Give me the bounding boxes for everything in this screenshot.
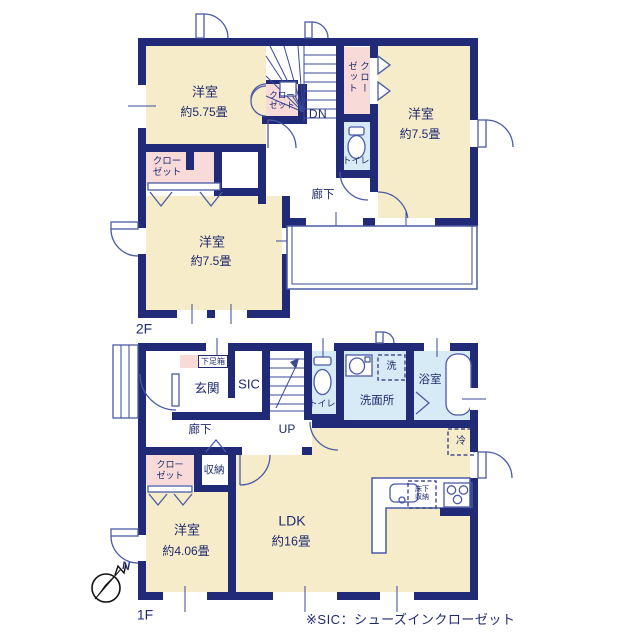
hallway-2f-label: 廊下: [312, 189, 335, 203]
washroom-label: 洗面所: [360, 395, 395, 409]
ldk-size: 約16畳: [272, 535, 311, 550]
balcony: [287, 226, 477, 289]
entrance-label: 玄関: [194, 382, 219, 397]
bedroom-1f-size: 約4.06畳: [162, 544, 209, 558]
closet-1f-label: クロー ゼット: [156, 460, 183, 481]
floorplan-canvas: 洋室 約5.75畳 クロー ゼット クローゼット DN トイレ 洋室 約7.5畳…: [0, 0, 640, 640]
toilet-1f-label: トイレ: [308, 399, 335, 410]
sic-label: SIC: [238, 376, 260, 391]
fridge-label: 冷: [456, 436, 466, 448]
laundry-label: 洗: [387, 361, 397, 373]
closet-2f-w-label: クロー ゼット: [153, 156, 182, 178]
bedroom-2f-nw-size: 約5.75畳: [180, 105, 227, 119]
stairs-up-label: UP: [279, 422, 296, 436]
closet-2f-center-label: クローゼット: [345, 61, 369, 99]
hallway-1f-label: 廊下: [189, 424, 212, 438]
bedroom-2f-sw-name: 洋室: [199, 234, 225, 249]
porch: [113, 345, 138, 418]
bedroom-2f-e-name: 洋室: [408, 106, 434, 121]
floor2-label: 2F: [136, 321, 152, 338]
bedroom-2f-e-size: 約7.5畳: [400, 127, 441, 141]
storage-label: 収納: [204, 464, 225, 476]
bathroom-label: 浴室: [419, 374, 442, 388]
sic-footnote: ※SIC：シューズインクローゼット: [306, 609, 515, 628]
toilet-2f-icon: [348, 127, 365, 159]
bedroom-1f-name: 洋室: [174, 522, 200, 537]
stairs-down-label: DN: [309, 107, 327, 121]
washbasin-icon: [346, 355, 372, 376]
floor1-label: 1F: [137, 607, 153, 624]
ldk-name: LDK: [278, 513, 305, 530]
toilet-1f-icon: [314, 357, 331, 395]
floorplan-graphics: [0, 0, 640, 640]
bedroom-2f-sw-size: 約7.5畳: [191, 254, 232, 268]
closet-2f-nw-label: クロー ゼット: [269, 90, 295, 110]
underfloor-label: 床下 収納: [415, 486, 429, 502]
shoe-cabinet-box: [180, 355, 198, 368]
toilet-2f-label: トイレ: [342, 156, 369, 167]
bedroom-1f: [146, 492, 228, 592]
bedroom-2f-nw-name: 洋室: [192, 84, 218, 99]
shoe-cabinet-label: 下足箱: [198, 355, 228, 368]
